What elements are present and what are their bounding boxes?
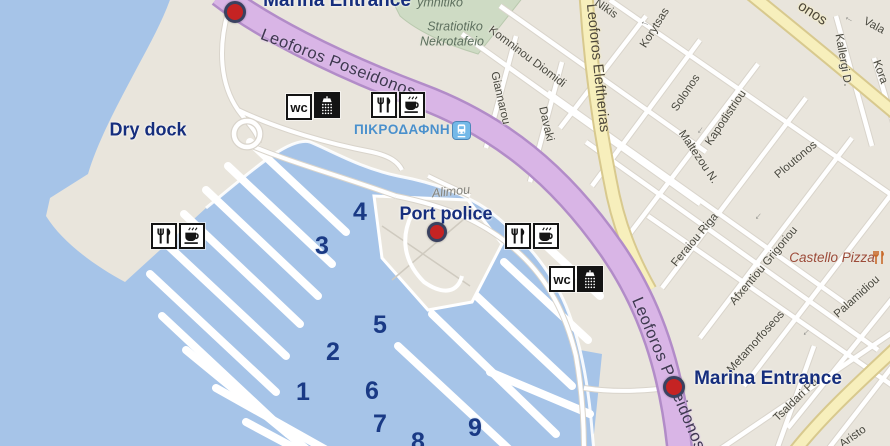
shower-icon[interactable] <box>314 92 340 118</box>
pikrodafni-station-label: ΠΙΚΡΟΔΑΦΝΗ <box>354 123 450 137</box>
dry-dock-label: Dry dock <box>109 121 186 140</box>
coffee-cup-glyph <box>536 226 556 246</box>
restaurant-icon[interactable] <box>151 223 177 249</box>
port-police-label: Port police <box>399 205 492 224</box>
castello-pizza-label: Castello Pizza <box>789 251 875 265</box>
pier-number-5: 5 <box>373 312 387 338</box>
wc-icon-glyph: wc <box>553 273 570 286</box>
pikrodafni-station-icon[interactable] <box>452 121 471 140</box>
fork-knife-glyph <box>374 95 394 115</box>
cemetery-label-line2: Stratiotiko <box>427 20 483 33</box>
cafe-icon[interactable] <box>179 223 205 249</box>
pier-number-8: 8 <box>411 429 425 446</box>
pier-number-1: 1 <box>296 379 310 405</box>
cemetery-label-line3: Nekrotafeio <box>420 35 484 48</box>
shower-icon[interactable] <box>577 266 603 292</box>
pier-number-9: 9 <box>468 415 482 441</box>
cafe-icon[interactable] <box>399 92 425 118</box>
wc-icon[interactable]: wc <box>286 94 312 120</box>
restaurant-icon[interactable] <box>505 223 531 249</box>
map-canvas[interactable]: ΠΙΚΡΟΔΑΦΝΗ ymnitiko Stratiotiko Nekrotaf… <box>0 0 890 446</box>
marina-entrance-label-bottom: Marina Entrance <box>694 369 842 389</box>
cafe-icon[interactable] <box>533 223 559 249</box>
marina-entrance-marker-top[interactable] <box>224 1 246 23</box>
fork-knife-glyph <box>154 226 174 246</box>
marina-entrance-marker-bottom[interactable] <box>663 376 685 398</box>
pier-number-7: 7 <box>373 411 387 437</box>
pier-number-3: 3 <box>315 233 329 259</box>
marina-entrance-label-top: Marina Entrance <box>263 0 411 11</box>
port-police-marker[interactable] <box>427 222 447 242</box>
pier-number-2: 2 <box>326 339 340 365</box>
coffee-cup-glyph <box>182 226 202 246</box>
shower-glyph <box>580 269 600 289</box>
coffee-cup-glyph <box>402 95 422 115</box>
restaurant-icon[interactable] <box>371 92 397 118</box>
restaurant-poi-icon[interactable] <box>872 250 885 265</box>
cemetery-label-line1: ymnitiko <box>417 0 463 10</box>
pier-number-6: 6 <box>365 378 379 404</box>
shower-glyph <box>317 95 337 115</box>
fork-knife-glyph <box>508 226 528 246</box>
wc-icon[interactable]: wc <box>549 266 575 292</box>
wc-icon-glyph: wc <box>290 101 307 114</box>
pier-number-4: 4 <box>353 199 367 225</box>
